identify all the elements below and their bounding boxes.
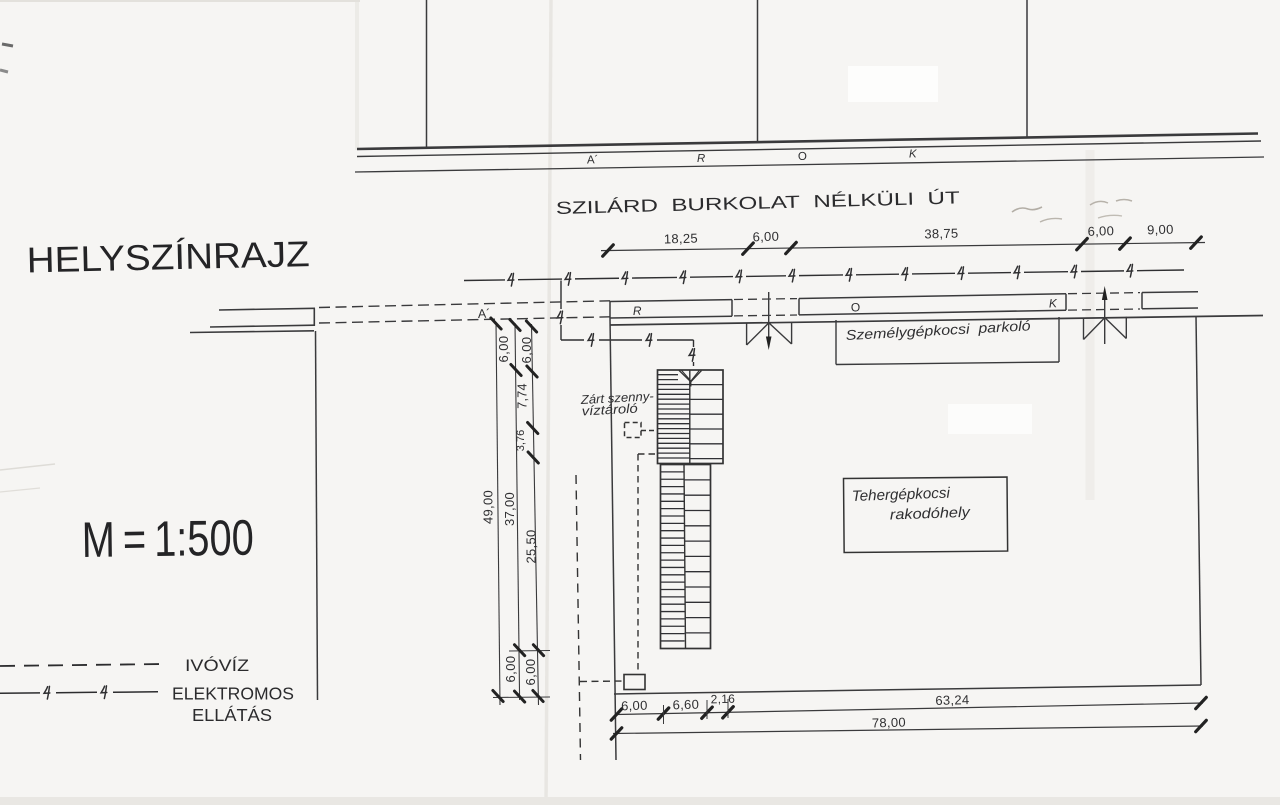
svg-text:6,00: 6,00 xyxy=(519,337,534,364)
svg-text:6,00: 6,00 xyxy=(523,659,538,686)
svg-text:IVÓVÍZ: IVÓVÍZ xyxy=(185,656,249,675)
svg-text:78,00: 78,00 xyxy=(872,715,906,731)
svg-text:6,00: 6,00 xyxy=(621,698,648,714)
svg-text:63,24: 63,24 xyxy=(935,692,969,708)
svg-text:49,00: 49,00 xyxy=(481,490,496,524)
svg-text:18,25: 18,25 xyxy=(664,231,698,247)
svg-text:R: R xyxy=(697,153,706,165)
svg-text:6,00: 6,00 xyxy=(1087,223,1114,239)
svg-text:A´: A´ xyxy=(587,154,599,166)
svg-text:M = 1:500: M = 1:500 xyxy=(81,510,254,568)
svg-text:6,00: 6,00 xyxy=(752,229,779,245)
svg-text:O: O xyxy=(851,300,861,314)
svg-text:rakodóhely: rakodóhely xyxy=(890,505,971,524)
svg-text:3,76: 3,76 xyxy=(515,430,527,451)
svg-text:37,00: 37,00 xyxy=(502,492,517,526)
svg-text:6,00: 6,00 xyxy=(496,336,511,363)
svg-text:2,16: 2,16 xyxy=(710,692,735,707)
svg-text:ELLÁTÁS: ELLÁTÁS xyxy=(192,705,272,725)
svg-text:A´: A´ xyxy=(478,307,491,321)
svg-text:9,00: 9,00 xyxy=(1147,222,1174,238)
svg-text:K: K xyxy=(1049,296,1058,310)
svg-text:HELYSZÍNRAJZ: HELYSZÍNRAJZ xyxy=(26,233,310,280)
svg-text:38,75: 38,75 xyxy=(924,226,958,242)
svg-text:6,00: 6,00 xyxy=(503,656,518,683)
svg-text:O: O xyxy=(798,151,807,163)
svg-text:25,50: 25,50 xyxy=(524,529,539,563)
svg-text:7,74: 7,74 xyxy=(516,383,530,409)
svg-text:Tehergépkocsi: Tehergépkocsi xyxy=(852,485,951,505)
svg-text:R: R xyxy=(633,304,642,318)
svg-text:víztároló: víztároló xyxy=(581,401,638,419)
svg-text:ELEKTROMOS: ELEKTROMOS xyxy=(172,684,294,704)
svg-text:6,60: 6,60 xyxy=(672,697,699,713)
